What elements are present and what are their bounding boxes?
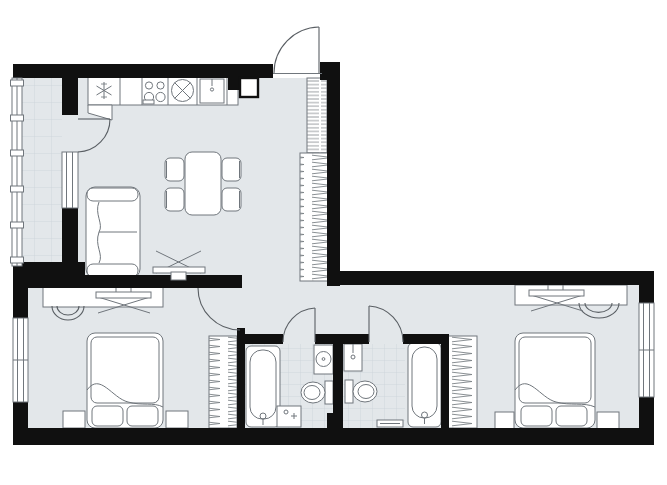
washbasin xyxy=(314,345,333,374)
kitchen-vent-shaft xyxy=(240,78,258,97)
dining-chair xyxy=(165,158,184,181)
balcony-tiles xyxy=(22,78,62,264)
entry-shelving-unit xyxy=(307,78,327,153)
double-bed xyxy=(87,333,163,428)
dining-chair xyxy=(222,158,241,181)
dining-chair xyxy=(165,188,184,211)
bathroom-vent-shaft xyxy=(327,413,343,428)
bathroom-1-west-wall xyxy=(237,328,245,428)
tv-screen xyxy=(96,292,151,298)
pillow xyxy=(521,406,552,426)
bathtub xyxy=(246,346,280,427)
floor-plan xyxy=(0,0,667,485)
toilet-tank xyxy=(345,380,353,403)
dining-chair xyxy=(222,188,241,211)
pillow xyxy=(127,406,158,426)
washbasin xyxy=(344,344,362,371)
pillow xyxy=(556,406,587,426)
tv-base xyxy=(171,272,186,280)
north-wall-left xyxy=(13,64,273,78)
double-bed xyxy=(515,333,595,428)
bedroom-2-window xyxy=(639,303,654,397)
bathtub xyxy=(408,343,441,427)
living-balcony-window xyxy=(62,152,78,208)
entrance-door xyxy=(273,27,322,74)
entrance-door-swing xyxy=(274,27,319,73)
hall-wardrobe xyxy=(300,153,328,281)
bath-mat xyxy=(377,420,403,427)
nightstand xyxy=(597,412,619,429)
oven-handle xyxy=(143,100,154,104)
balcony-door-opening xyxy=(62,115,78,153)
sofa-armrest xyxy=(87,188,138,201)
wardrobe xyxy=(209,336,237,428)
floor-plan-drawing xyxy=(0,0,667,485)
sink-cabinet-icon xyxy=(200,79,224,103)
nightstand xyxy=(495,412,514,429)
living-east-wall xyxy=(327,72,340,286)
bedroom-1-window xyxy=(13,318,28,402)
toilet-tank xyxy=(325,381,333,404)
bathroom-2-east-wall xyxy=(441,334,449,428)
dining-table xyxy=(185,152,221,215)
sofa xyxy=(86,187,140,278)
nightstand xyxy=(166,411,188,428)
south-wall xyxy=(13,428,654,445)
bathroom-wall-c xyxy=(403,334,447,344)
bathroom-wall-a xyxy=(245,334,283,344)
north-wall-right xyxy=(334,271,654,285)
pillow xyxy=(92,406,123,426)
tv-screen xyxy=(529,290,584,296)
bedroom-1-north-wall xyxy=(13,275,242,288)
nightstand xyxy=(63,411,85,428)
toilet xyxy=(345,380,377,403)
balcony-glazing xyxy=(11,78,24,266)
washing-machine xyxy=(277,406,301,427)
wardrobe xyxy=(447,336,477,428)
toilet xyxy=(301,381,333,404)
